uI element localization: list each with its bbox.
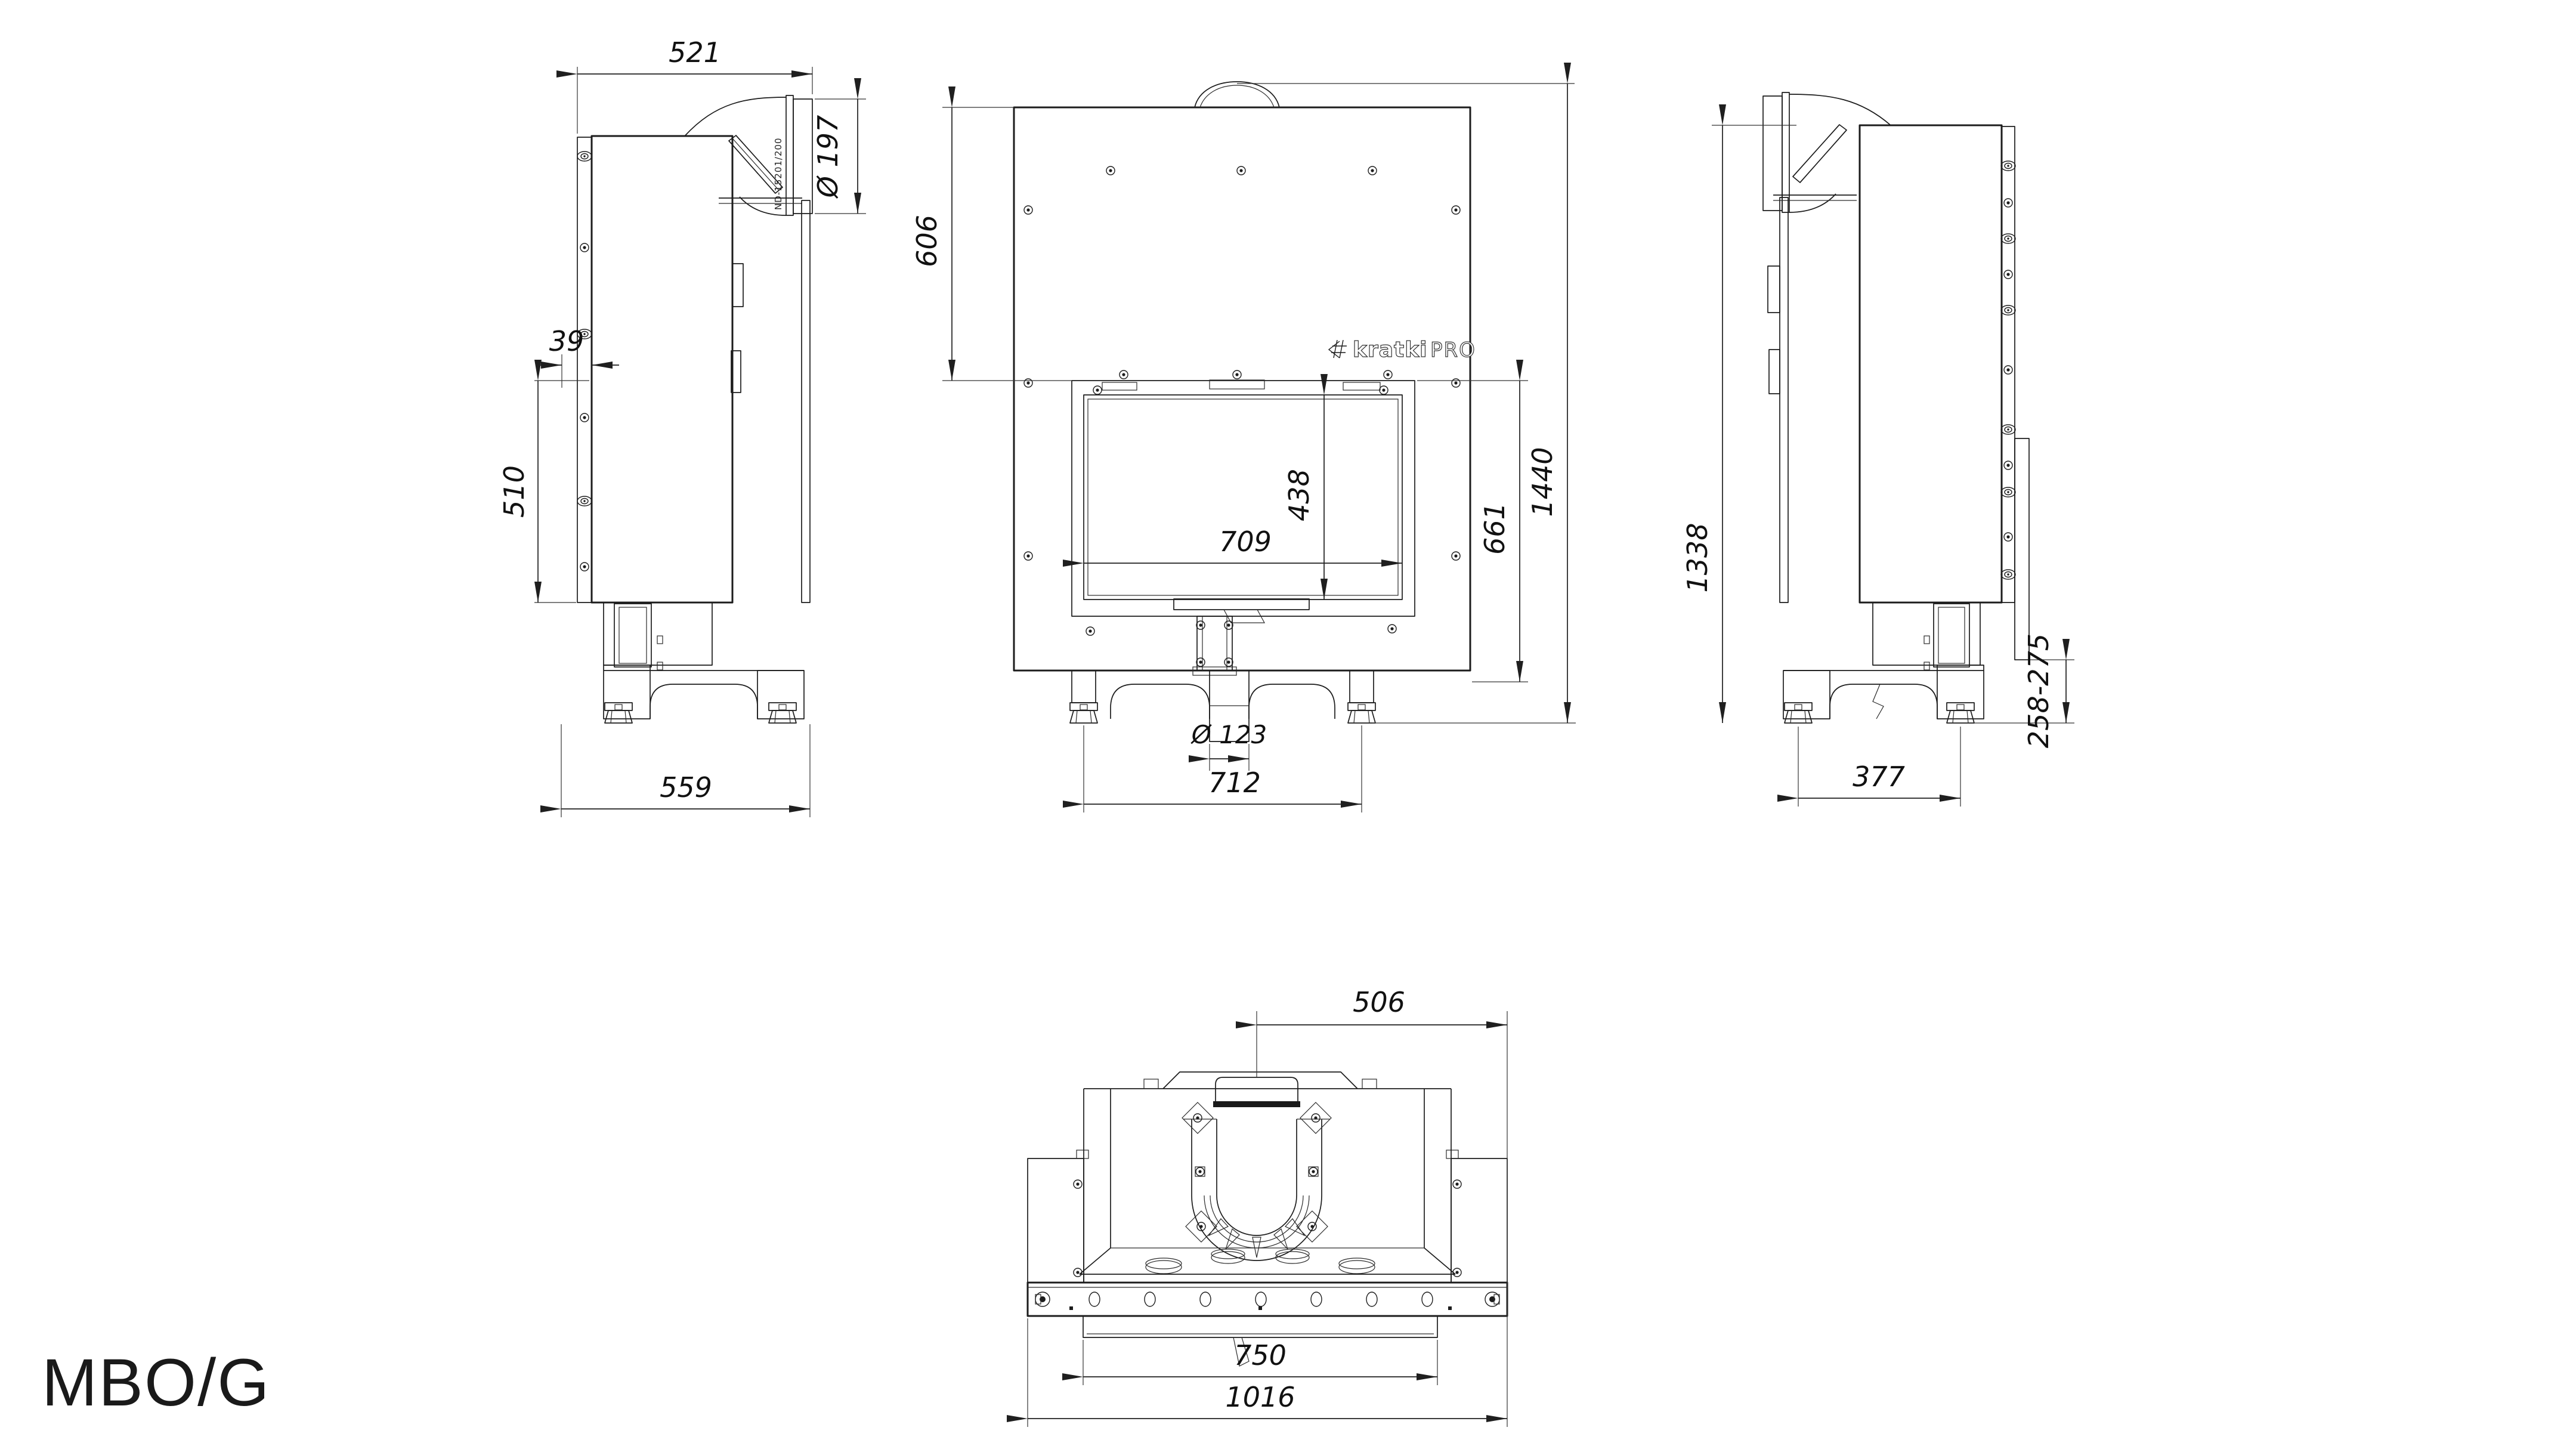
dim-bottom-total-width: 1016 — [1225, 1381, 1295, 1413]
drawing-canvas: ND-15201/200 521 — [0, 0, 2576, 1449]
dim-front-glass-height: 438 — [1283, 469, 1315, 521]
model-title: MBO/G — [42, 1345, 270, 1420]
dim-front-total-height: 1440 — [1526, 447, 1558, 517]
duct-part-label: ND-15201/200 — [773, 137, 784, 210]
dim-front-intake-diameter: Ø 123 — [1190, 720, 1267, 749]
technical-drawing-page: ND-15201/200 521 — [0, 0, 2576, 1449]
flue-spigot-ring — [1213, 1101, 1300, 1107]
dim-left-frame-height: 510 — [498, 465, 530, 518]
dim-bottom-flue-offset: 506 — [1353, 986, 1405, 1018]
dim-left-flue-diameter: Ø 197 — [812, 115, 844, 199]
logo-brand-text: kratki — [1353, 338, 1427, 362]
dim-right-body-height: 1338 — [1681, 523, 1714, 592]
dim-right-feet-spacing: 377 — [1853, 761, 1905, 793]
dim-front-glass-width: 709 — [1219, 526, 1272, 558]
dim-left-base-depth: 559 — [660, 771, 712, 804]
dim-front-height: 661 — [1479, 502, 1511, 555]
paper-background — [0, 0, 2576, 1449]
logo-suffix-text: PRO — [1430, 338, 1476, 362]
dim-bottom-inner-width: 750 — [1234, 1339, 1287, 1371]
dim-front-feet-spacing: 712 — [1208, 767, 1261, 799]
dim-front-top-to-glass: 606 — [911, 215, 943, 267]
dim-left-frame-offset: 39 — [549, 325, 585, 357]
dim-right-base-range: 258-275 — [2023, 634, 2055, 748]
dim-left-top-depth: 521 — [669, 36, 721, 69]
